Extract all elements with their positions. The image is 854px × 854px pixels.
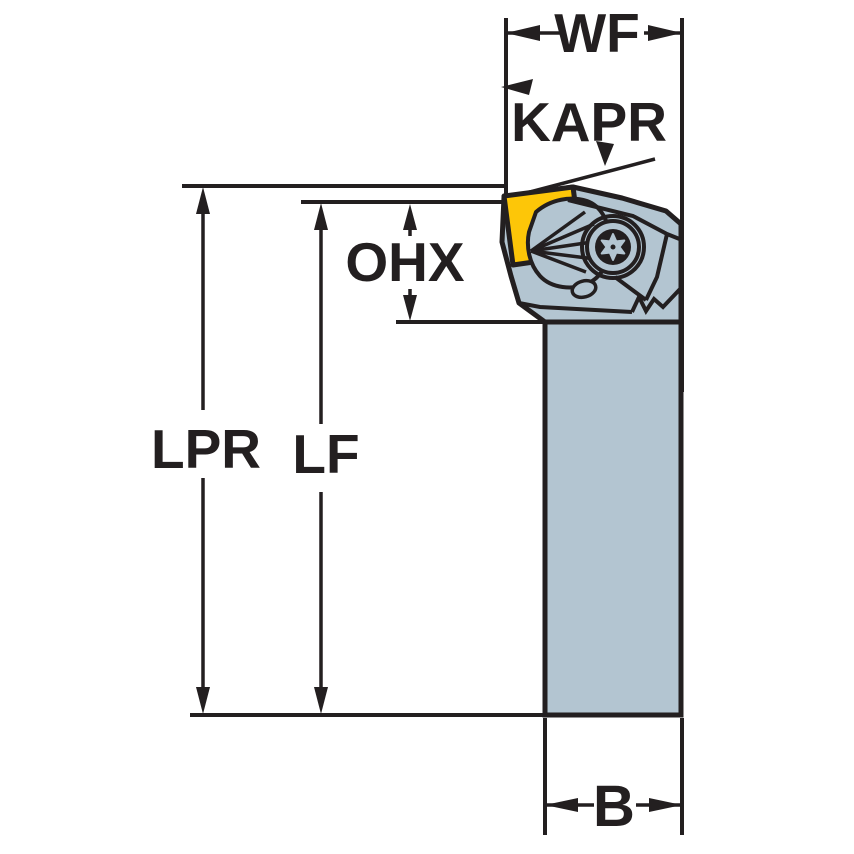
lpr-label: LPR — [151, 418, 261, 480]
screw-center-dot — [611, 245, 616, 250]
wf-label: WF — [554, 2, 640, 64]
torx-screw — [582, 216, 644, 278]
diagram-canvas: WF KAPR OHX LPR LF B — [0, 0, 854, 854]
lf-down-arrow-icon — [314, 687, 328, 714]
b-left-arrow-icon — [545, 798, 578, 812]
b-right-arrow-icon — [649, 798, 682, 812]
lpr-down-arrow-icon — [196, 687, 210, 714]
b-label: B — [593, 774, 635, 839]
ohx-down-arrow-icon — [403, 295, 417, 321]
tool-holder-dimension-diagram: WF KAPR OHX LPR LF B — [0, 0, 854, 854]
ohx-label: OHX — [345, 231, 465, 293]
kapr-label: KAPR — [511, 91, 667, 153]
lf-label: LF — [292, 423, 359, 485]
wf-right-arrow-icon — [648, 25, 682, 41]
lpr-up-arrow-icon — [196, 187, 210, 214]
lf-up-arrow-icon — [314, 203, 328, 230]
wf-left-arrow-icon — [506, 25, 540, 41]
ohx-up-arrow-icon — [403, 204, 417, 230]
tool-holder-body — [502, 187, 682, 715]
shank — [545, 322, 681, 715]
